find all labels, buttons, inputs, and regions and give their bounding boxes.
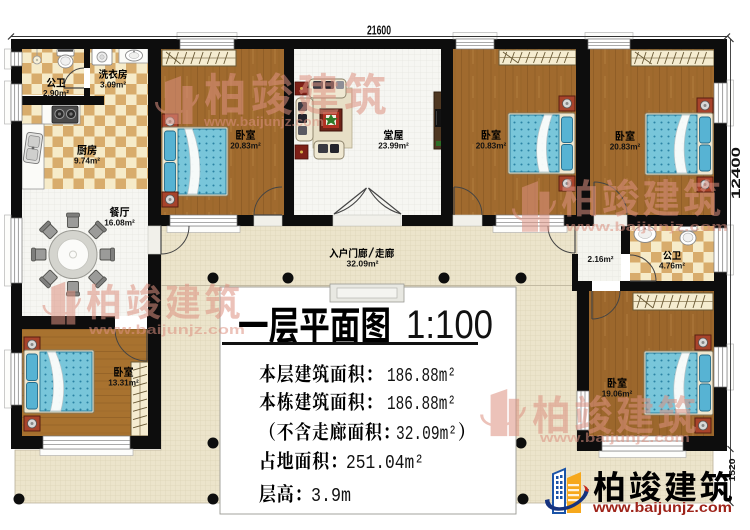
svg-text:3.09m²: 3.09m² (100, 81, 126, 90)
svg-text:12400: 12400 (731, 147, 743, 199)
svg-text:1:100: 1:100 (406, 303, 493, 347)
svg-text:3.9m: 3.9m (311, 485, 351, 507)
svg-text:9.74m²: 9.74m² (74, 157, 100, 166)
svg-text:32.09m²: 32.09m² (346, 259, 378, 269)
svg-text:1520: 1520 (727, 458, 737, 481)
svg-text:www.baijunjz.com: www.baijunjz.com (592, 500, 732, 515)
svg-text:2.16m²: 2.16m² (588, 255, 614, 264)
svg-text:186.88m²: 186.88m² (387, 393, 456, 415)
svg-text:www.baijunjz.com: www.baijunjz.com (565, 219, 728, 234)
svg-text:4.76m²: 4.76m² (659, 262, 685, 271)
svg-text:13.31m²: 13.31m² (108, 379, 139, 388)
svg-text:23.99m²: 23.99m² (378, 142, 409, 151)
svg-text:www.baijunjz.com: www.baijunjz.com (88, 323, 245, 337)
svg-text:251.04m²: 251.04m² (346, 452, 424, 474)
svg-text:19.06m²: 19.06m² (602, 390, 633, 399)
svg-text:21600: 21600 (367, 23, 391, 38)
svg-text:20.83m²: 20.83m² (230, 142, 261, 151)
svg-text:20.83m²: 20.83m² (610, 143, 641, 152)
svg-text:www.baijunjz.com: www.baijunjz.com (539, 431, 690, 445)
svg-text:20.83m²: 20.83m² (476, 142, 507, 151)
svg-text:2.90m²: 2.90m² (43, 89, 69, 98)
svg-text:186.88m²: 186.88m² (387, 365, 456, 387)
svg-text:16.08m²: 16.08m² (104, 219, 135, 228)
svg-text:32.09m²: 32.09m² (396, 423, 457, 445)
svg-text:www.baijunjz.com: www.baijunjz.com (203, 114, 324, 129)
